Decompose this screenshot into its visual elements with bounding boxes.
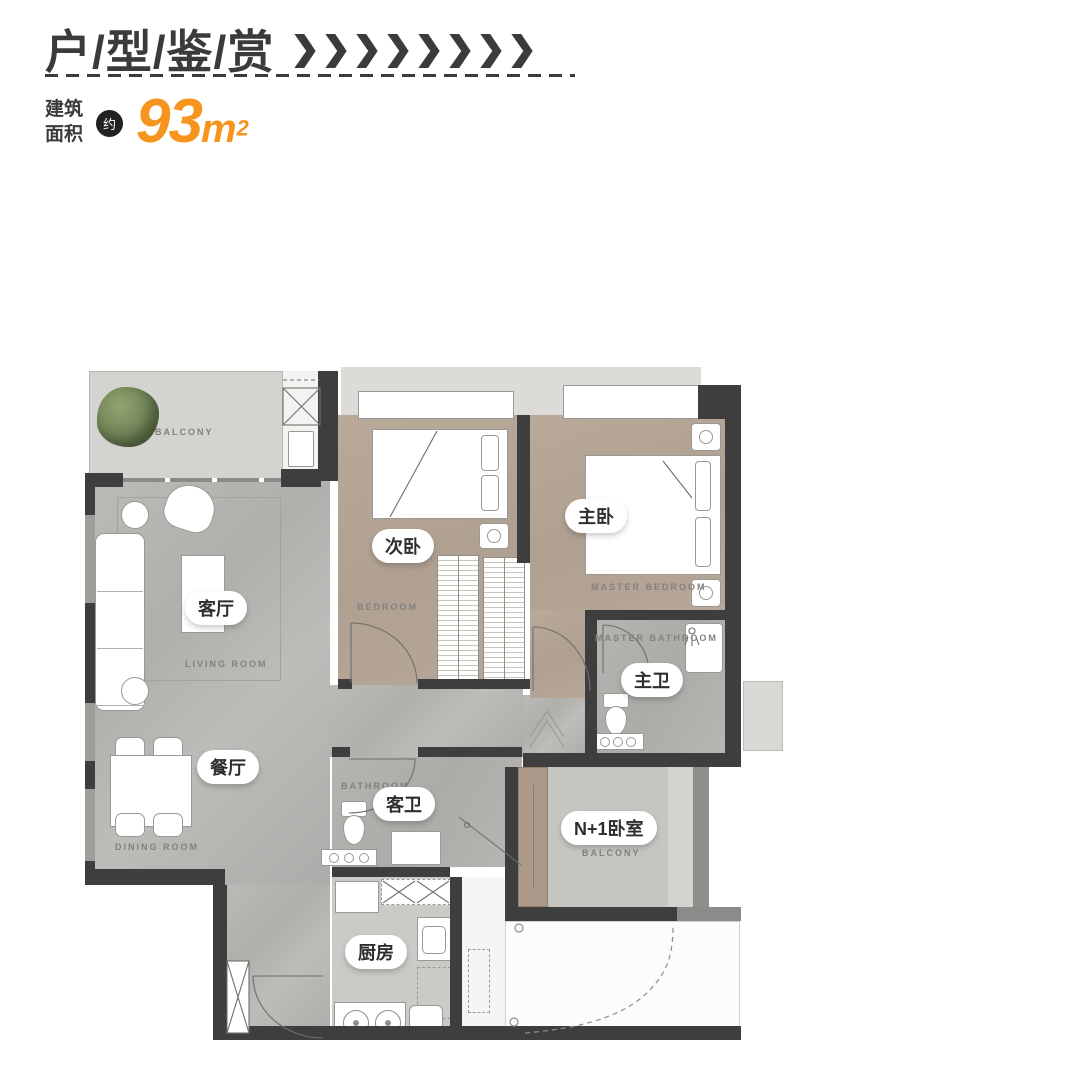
room-sublabel-n1: BALCONY <box>582 848 641 858</box>
room-label-n1: N+1卧室 <box>561 811 657 845</box>
n1-right-ledge <box>668 767 693 907</box>
wall <box>418 679 530 689</box>
dining-chair <box>153 813 183 837</box>
wall <box>281 469 321 487</box>
chevron-icon <box>294 34 320 68</box>
room-label-master-bath: 主卫 <box>621 663 683 697</box>
side-table <box>121 501 149 529</box>
area-label: 建筑 面积 <box>45 98 83 147</box>
chevron-icon <box>418 34 444 68</box>
window <box>85 789 95 861</box>
area-unit-sup: 2 <box>237 116 249 141</box>
wall <box>585 610 725 620</box>
sink-basin-dot <box>359 853 369 863</box>
ac-platform <box>743 681 783 751</box>
toilet <box>603 693 629 735</box>
balcony-sliding-door <box>123 478 281 482</box>
wall <box>677 907 741 921</box>
wall <box>505 907 677 921</box>
wall <box>698 385 741 419</box>
hallway-floor2 <box>523 695 585 757</box>
page-title: 户/型/鉴/赏 <box>45 16 274 82</box>
wardrobe <box>437 555 479 685</box>
dining-chair <box>115 813 145 837</box>
side-table <box>121 677 149 705</box>
room-sublabel-dining: DINING ROOM <box>115 842 199 852</box>
nightstand <box>691 423 721 451</box>
wardrobe <box>483 557 525 685</box>
sink-basin-dot <box>626 737 636 747</box>
chevron-arrows-icon <box>294 34 537 68</box>
room-label-bedroom2: 次卧 <box>372 529 434 563</box>
area-unit: m <box>201 107 237 151</box>
wall <box>332 747 350 757</box>
area-value-group: 93m2 <box>136 94 249 152</box>
entry-hall-floor <box>225 885 330 1040</box>
room-label-living: 客厅 <box>185 591 247 625</box>
pillow <box>481 475 499 511</box>
nightstand <box>479 523 509 549</box>
wall <box>85 869 225 885</box>
floor-plan: 客厅 餐厅 次卧 主卧 主卫 客卫 厨房 N+1卧室 BALCONY LIVIN… <box>85 365 810 1067</box>
wall <box>450 877 462 1040</box>
window <box>85 703 95 761</box>
fridge <box>335 881 379 913</box>
n1-right-wall-gray <box>693 767 709 907</box>
chevron-icon <box>449 34 475 68</box>
wall <box>213 885 227 1040</box>
area-label-line1: 建筑 <box>45 98 83 123</box>
utility-door <box>288 431 314 467</box>
window <box>85 515 95 603</box>
shower <box>685 623 723 673</box>
wall <box>418 747 522 757</box>
wall <box>505 1026 741 1040</box>
bathroom-counter <box>321 849 377 866</box>
pillow <box>481 435 499 471</box>
wall <box>318 371 338 481</box>
wall <box>93 473 123 487</box>
page: { "header": { "title": "户/型/鉴/赏", "chevr… <box>0 0 1079 1085</box>
wall <box>505 767 518 921</box>
room-sublabel-balcony: BALCONY <box>155 427 214 437</box>
washing-machine <box>468 949 490 1013</box>
chevron-icon <box>356 34 382 68</box>
wardrobe-handle <box>533 785 534 889</box>
kitchen-sink <box>417 917 451 961</box>
sink-basin-dot <box>613 737 623 747</box>
room-sublabel-master-bath: MASTER BATHROOM <box>595 633 718 643</box>
wall <box>523 753 741 767</box>
sink-basin <box>422 926 446 954</box>
area-value: 93 <box>136 87 201 156</box>
kitchen-cabinet <box>381 879 451 905</box>
approx-badge: 约 <box>96 110 123 137</box>
bay-window <box>358 391 514 419</box>
room-label-dining: 餐厅 <box>197 750 259 784</box>
chevron-icon <box>480 34 506 68</box>
plant <box>97 387 159 447</box>
wall <box>517 415 530 563</box>
sink-basin-dot <box>600 737 610 747</box>
area-info: 建筑 面积 约 93m2 <box>45 94 249 152</box>
bathroom-vanity <box>391 831 441 865</box>
bay-window <box>563 385 700 419</box>
pillow <box>695 517 711 567</box>
terrace-floor <box>505 921 740 1040</box>
wall <box>213 1026 505 1040</box>
wall <box>725 419 741 753</box>
room-sublabel-living: LIVING ROOM <box>185 659 268 669</box>
area-label-line2: 面积 <box>45 123 83 148</box>
master-entry-floor <box>530 610 585 698</box>
chevron-icon <box>511 34 537 68</box>
header: 户/型/鉴/赏 <box>45 16 537 82</box>
sink-basin-dot <box>344 853 354 863</box>
room-sublabel-master: MASTER BEDROOM <box>591 582 707 592</box>
toilet <box>341 801 367 845</box>
wall <box>338 679 352 689</box>
title-underline <box>45 74 575 77</box>
pillow <box>695 461 711 511</box>
room-label-kitchen: 厨房 <box>345 935 407 969</box>
room-label-guest-bath: 客卫 <box>373 787 435 821</box>
chevron-icon <box>325 34 351 68</box>
sink-basin-dot <box>329 853 339 863</box>
room-sublabel-bedroom2: BEDROOM <box>357 602 418 612</box>
room-label-master: 主卧 <box>565 499 627 533</box>
bathroom-vanity <box>592 733 644 750</box>
wall <box>332 867 450 877</box>
chevron-icon <box>387 34 413 68</box>
